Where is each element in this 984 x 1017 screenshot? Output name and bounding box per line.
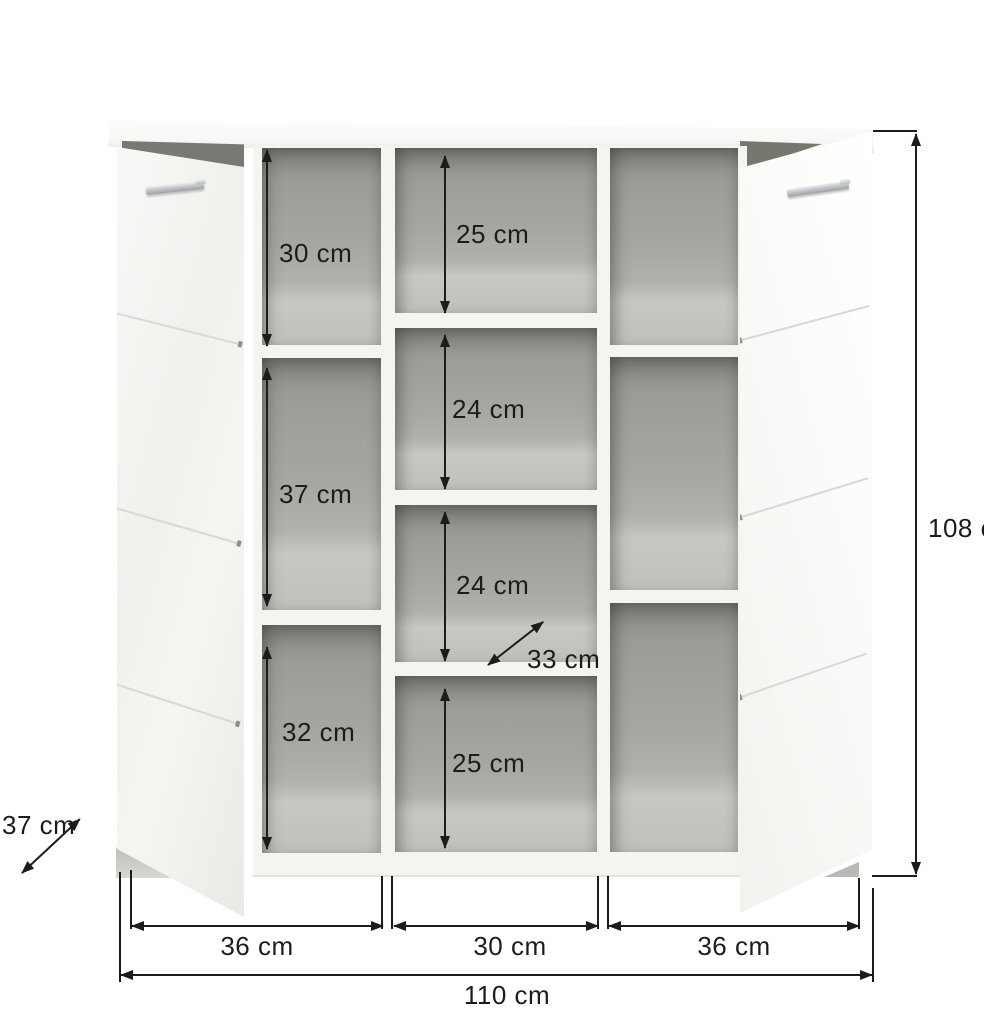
dim-label-middle-1: 25 cm bbox=[456, 219, 529, 250]
shelf-cell-right-top bbox=[610, 148, 738, 345]
dim-label-middle-3: 24 cm bbox=[456, 570, 529, 601]
dim-label-section-left: 36 cm bbox=[220, 931, 293, 962]
left-door bbox=[117, 147, 244, 917]
dim-label-left-bottom: 32 cm bbox=[282, 717, 355, 748]
left-door-seam-2 bbox=[115, 507, 241, 545]
dim-arrow-middle-1-25 bbox=[444, 156, 446, 313]
right-door-handle bbox=[787, 181, 850, 198]
shelf-cell-right-middle bbox=[610, 357, 738, 590]
dim-label-cabinet-depth: 37 cm bbox=[2, 810, 75, 841]
dim-label-overall-height: 108 cm bbox=[928, 513, 984, 544]
right-door-seam-3 bbox=[738, 653, 867, 699]
dim-arrow-middle-2-24 bbox=[444, 335, 446, 489]
dim-arrow-middle-4-25 bbox=[444, 689, 446, 848]
dim-arrow-left-bottom-32 bbox=[266, 647, 268, 849]
dim-extension-height-bottom bbox=[872, 875, 917, 877]
dim-arrow-section-middle-30 bbox=[394, 925, 598, 927]
dim-arrow-overall-width-110 bbox=[121, 974, 872, 976]
right-door bbox=[740, 132, 872, 913]
dim-label-left-middle: 37 cm bbox=[279, 479, 352, 510]
left-door-handle bbox=[146, 181, 205, 195]
dim-label-section-middle: 30 cm bbox=[473, 931, 546, 962]
shelf-cell-right-bottom bbox=[610, 603, 738, 852]
dim-label-section-right: 36 cm bbox=[697, 931, 770, 962]
ext-line-far-left bbox=[119, 872, 121, 982]
right-door-seam-2 bbox=[738, 477, 869, 519]
dim-arrow-left-top-30 bbox=[266, 150, 268, 346]
dim-label-middle-4: 25 cm bbox=[452, 748, 525, 779]
left-door-seam-1 bbox=[115, 312, 243, 346]
product-dimension-diagram: 30 cm 25 cm 37 cm 24 cm 24 cm 33 cm 32 c… bbox=[0, 0, 984, 1017]
dim-label-shelf-depth: 33 cm bbox=[527, 644, 600, 675]
dim-arrow-section-left-36 bbox=[132, 925, 383, 927]
dim-arrow-left-middle-37 bbox=[266, 368, 268, 606]
dim-extension-height-top bbox=[873, 130, 917, 132]
right-door-seam-1 bbox=[738, 305, 870, 342]
dim-arrow-section-right-36 bbox=[609, 925, 859, 927]
left-door-seam-3 bbox=[115, 683, 240, 725]
dim-label-left-top: 30 cm bbox=[279, 238, 352, 269]
dim-label-middle-2: 24 cm bbox=[452, 394, 525, 425]
ext-line-far-right bbox=[872, 888, 874, 982]
dim-label-overall-width: 110 cm bbox=[464, 980, 550, 1011]
dim-arrow-middle-3-24 bbox=[444, 512, 446, 661]
dim-arrow-overall-height-108 bbox=[915, 134, 917, 874]
